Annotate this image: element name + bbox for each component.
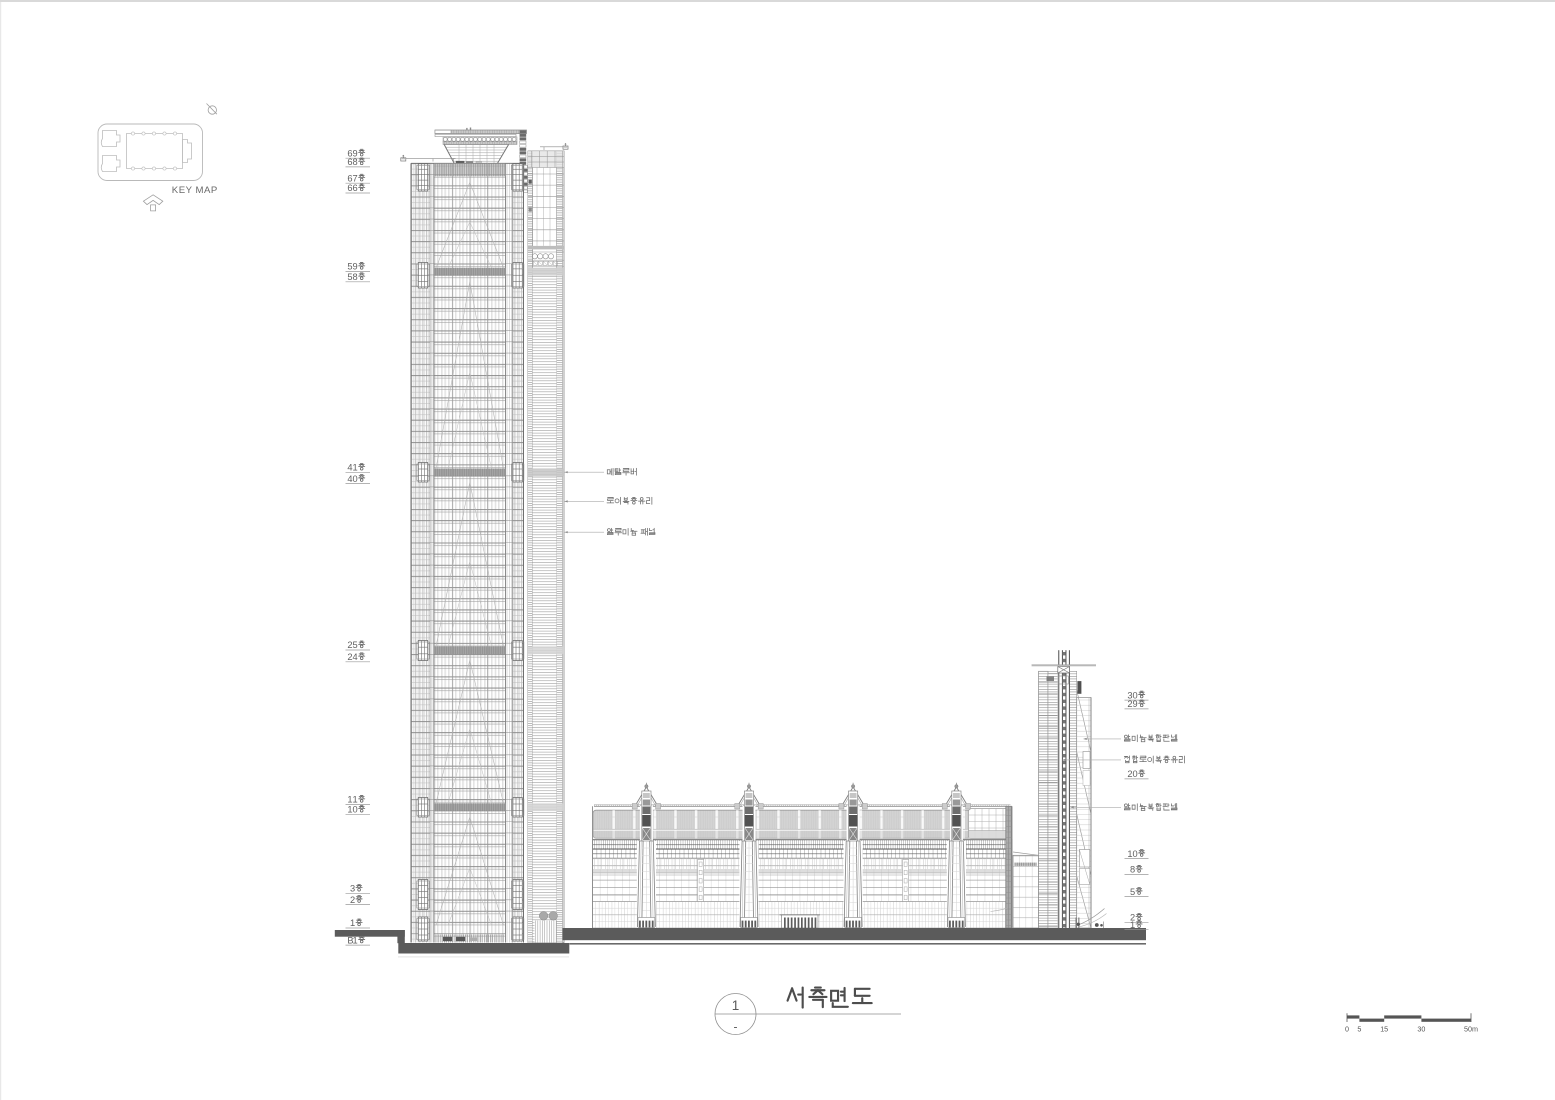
svg-text:3: 3 (350, 884, 355, 894)
svg-text:1: 1 (353, 935, 358, 945)
svg-text:8: 8 (353, 157, 358, 167)
svg-text:15: 15 (1380, 1025, 1388, 1034)
svg-text:5: 5 (1357, 1025, 1361, 1034)
svg-text:1: 1 (350, 918, 355, 928)
svg-text:0: 0 (1345, 1025, 1349, 1034)
svg-text:1: 1 (353, 463, 358, 473)
svg-text:50m: 50m (1464, 1025, 1478, 1034)
svg-text:9: 9 (353, 262, 358, 272)
svg-text:0: 0 (353, 805, 358, 815)
svg-text:1: 1 (732, 998, 740, 1013)
svg-text:-: - (734, 1020, 738, 1034)
svg-text:KEY MAP: KEY MAP (172, 185, 218, 196)
svg-text:8: 8 (353, 272, 358, 282)
svg-text:5: 5 (1130, 887, 1135, 897)
svg-text:9: 9 (1133, 699, 1138, 709)
svg-text:5: 5 (353, 640, 358, 650)
svg-text:8: 8 (1130, 865, 1135, 875)
svg-text:1: 1 (353, 795, 358, 805)
svg-text:6: 6 (353, 183, 358, 193)
svg-text:0: 0 (1133, 849, 1138, 859)
svg-text:7: 7 (353, 173, 358, 183)
svg-text:1: 1 (1130, 920, 1135, 930)
svg-text:30: 30 (1417, 1025, 1425, 1034)
svg-text:0: 0 (1133, 769, 1138, 779)
svg-text:4: 4 (353, 652, 358, 662)
svg-text:0: 0 (353, 474, 358, 484)
svg-text:2: 2 (350, 895, 355, 905)
